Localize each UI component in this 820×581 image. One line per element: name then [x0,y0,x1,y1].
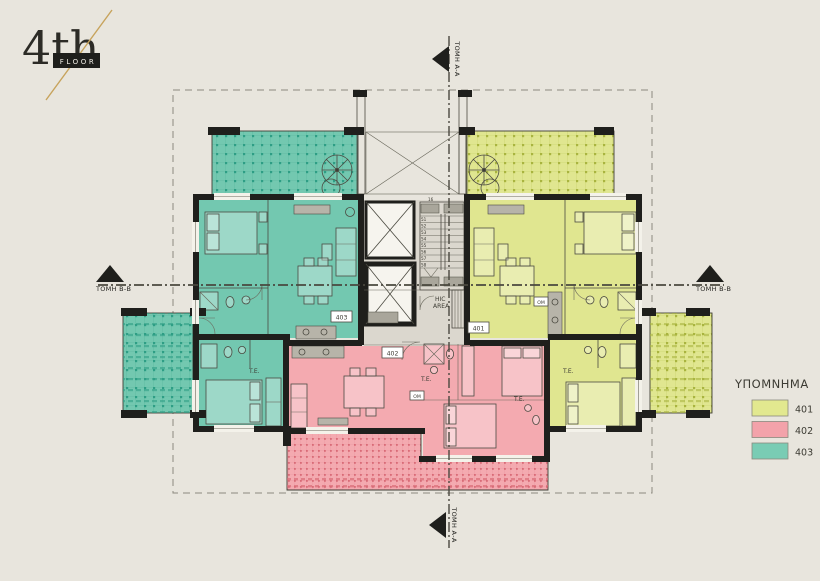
balcony-planter-row [287,476,548,490]
chair [304,296,314,304]
sofa [474,228,494,276]
legend-swatch-401 [752,400,788,416]
window [590,193,626,200]
svg-text:ΤΟΜΗ Β-Β: ΤΟΜΗ Β-Β [95,285,131,293]
floor-badge-label: FLOOR [60,58,97,66]
svg-text:OM: OM [537,300,545,306]
chair [304,258,314,266]
svg-text:403: 403 [336,315,348,322]
window [192,222,199,252]
dining-table [344,376,384,408]
bathtub [201,344,217,368]
window [635,222,642,252]
chair [520,258,530,266]
svg-text:ΤΟΜΗ Β-Β: ΤΟΜΗ Β-Β [695,285,731,293]
balcony-403-left [123,313,193,413]
nightstand [575,244,583,254]
room-label-te-401: T.E. [562,368,574,375]
window [496,455,532,462]
toilet-icon [226,297,234,308]
chair [318,296,328,304]
window [306,427,348,434]
stair-step-number: 55 [421,243,427,248]
toilet-icon [224,347,232,358]
sink-icon [525,405,532,412]
legend-label-403: 403 [795,448,813,459]
floor-plan-page: 16 51 52 53 54 55 56 57 58 HIC AREA [0,0,820,581]
stair-step-number: 52 [421,224,427,229]
wardrobe [622,378,636,426]
nightstand [575,212,583,222]
chair [350,408,360,416]
sofa [336,228,356,276]
pillow [207,214,219,231]
sink-icon [584,346,591,353]
window [635,300,642,324]
window [192,380,199,412]
pillow [622,233,634,250]
pillow [207,233,219,250]
legend-label-401: 401 [795,405,813,416]
hic-area-label2: AREA [433,303,450,310]
toilet-icon [446,349,453,359]
unit-tag-402: 402 [382,347,403,358]
pillow [568,406,578,424]
svg-text:OM: OM [413,394,421,400]
pillow [622,214,634,231]
legend-title: ΥΠΟΜΝΗΜΑ [734,377,809,391]
tv-unit [318,418,348,425]
wardrobe [462,346,474,396]
toilet-icon [533,415,540,424]
unit-tag-403: 403 [331,311,352,322]
toilet-icon [598,347,606,358]
window [214,425,254,432]
room-label-te-402b: T.E. [513,396,525,403]
pillow [446,406,456,424]
pillow [250,404,260,422]
pillow [523,348,540,358]
pillow [568,384,578,402]
om-tag-401: OM [534,297,548,306]
svg-text:401: 401 [473,326,485,333]
tv-unit [294,205,330,214]
stair-step-number: 54 [421,237,427,242]
svg-text:ΤΟΜΗ Α-Α: ΤΟΜΗ Α-Α [453,40,461,77]
window [214,193,250,200]
chair [318,258,328,266]
dining-table [500,266,534,296]
window [566,425,606,432]
sofa [291,384,307,428]
svg-text:402: 402 [387,351,399,358]
stair-top-number: 16 [428,197,434,202]
chair [506,296,516,304]
stair-step-number: 53 [421,230,427,235]
entry-mat [368,312,398,323]
room-label-te-402a: T.E. [420,376,432,383]
chair [506,258,516,266]
window [436,455,472,462]
toilet-icon [600,297,608,308]
legend-swatch-403 [752,443,788,459]
legend-swatch-402 [752,422,788,438]
balcony-401-top [466,131,614,195]
window [635,380,642,412]
sink-icon [430,366,437,373]
nightstand [259,212,267,222]
pillow [504,348,521,358]
nightstand [259,244,267,254]
chair [366,368,376,376]
chair [350,368,360,376]
room-label-te-403: T.E. [248,368,260,375]
window [192,300,199,324]
stair-step-number: 51 [421,217,427,222]
hic-area-label: HIC [435,296,445,303]
unit-tag-401: 401 [468,322,489,333]
window [486,193,534,200]
om-tag-402: OM [410,391,424,400]
sink-icon [238,346,245,353]
balcony-403-top [212,131,358,195]
chair [366,408,376,416]
dining-table [298,266,332,296]
legend-label-402: 402 [795,426,813,437]
kitchen-counter [292,346,344,358]
kitchen-counter [296,326,336,339]
svg-text:ΤΟΜΗ Α-Α: ΤΟΜΗ Α-Α [450,506,458,543]
stair-step-number: 56 [421,250,427,255]
elevator-shaft-icon-upper [366,202,414,258]
floor-plan-drawing: 16 51 52 53 54 55 56 57 58 HIC AREA [0,0,820,581]
window [294,193,342,200]
balcony-401-right [650,313,712,413]
pillow [446,428,456,446]
pillow [250,382,260,400]
bathtub [620,344,636,368]
stair-step-number: 58 [421,263,427,268]
stair-step-number: 57 [421,256,427,261]
tv-unit [488,205,524,214]
chair [520,296,530,304]
